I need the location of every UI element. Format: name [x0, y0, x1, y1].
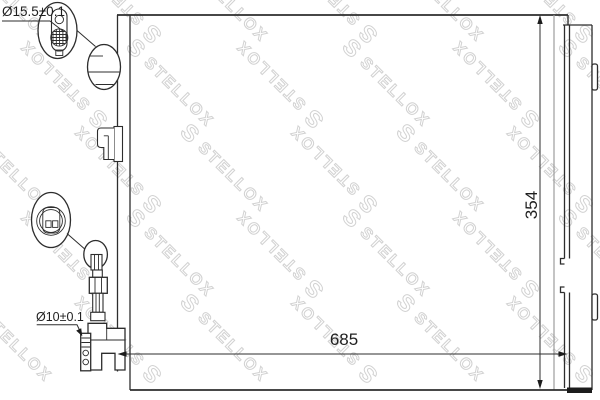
width-dimension: [118, 351, 568, 356]
bottom-port-assembly: [84, 241, 108, 321]
mount-tab-lower: [592, 294, 598, 320]
bottom-port-diameter-label: Ø10±0.1: [36, 310, 84, 324]
mount-tab-upper: [592, 64, 598, 90]
core-height-dimension-label: 354: [522, 183, 540, 227]
bottom-diameter-leader: [37, 325, 83, 337]
upper-port-fitting: [88, 45, 121, 90]
receiver-drier-tank: [561, 15, 598, 393]
core-width-dimension-label: 685: [322, 330, 366, 350]
condenser-line-drawing: [0, 0, 600, 400]
top-port-diameter-label: Ø15.5±0.1: [2, 4, 65, 19]
technical-drawing-canvas: S STELLOXS STELLOXS STELLOXS STELLOXS ST…: [0, 0, 600, 400]
detail-circle-connector: [32, 193, 88, 252]
bottom-bracket: [81, 323, 125, 371]
leader-to-bottom-port: [67, 234, 87, 252]
middle-bracket: [98, 127, 123, 162]
leader-to-fitting: [77, 31, 96, 47]
